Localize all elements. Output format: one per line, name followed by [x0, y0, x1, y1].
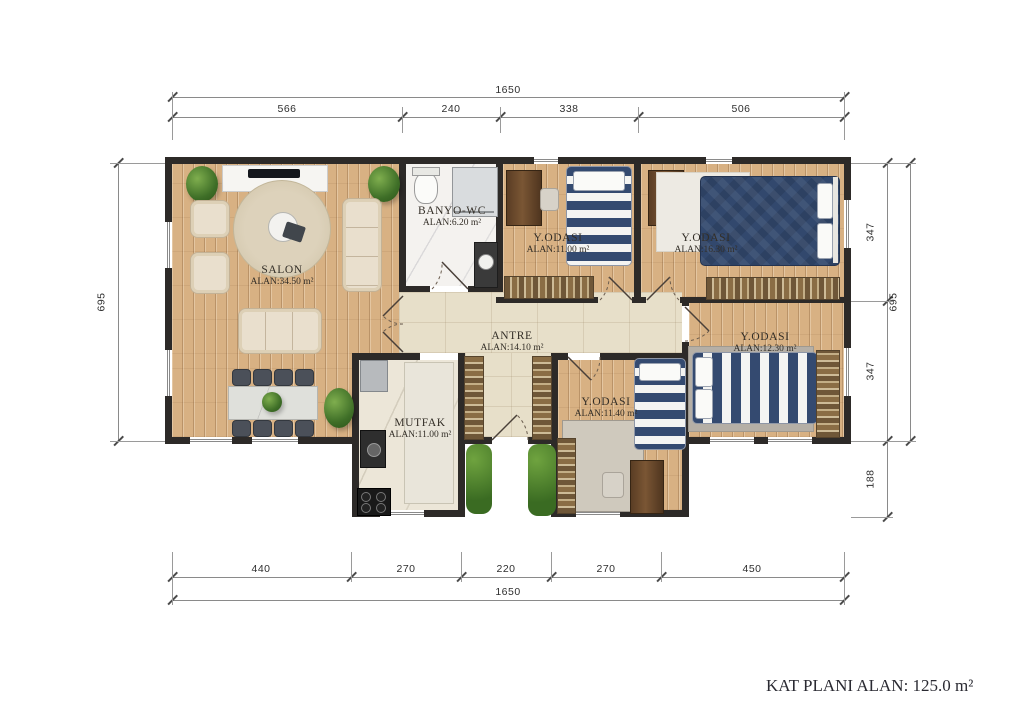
wall: [399, 286, 430, 292]
window: [190, 437, 232, 444]
sofa: [342, 198, 382, 292]
window: [165, 350, 172, 396]
window: [165, 222, 172, 268]
desk: [506, 170, 542, 226]
armchair: [190, 252, 230, 294]
dim-ext-line: [110, 441, 168, 442]
floor-plan-page: 1650 566 240 338 506 695 347 347: [0, 0, 1030, 728]
dim-line: [118, 163, 119, 441]
wall: [399, 157, 406, 292]
pillow: [695, 389, 713, 419]
dining-chair: [295, 369, 314, 386]
wall: [165, 157, 851, 164]
bush: [528, 444, 556, 516]
runner-rug: [504, 276, 594, 299]
bed: [566, 166, 632, 266]
dim-line: [172, 600, 844, 601]
window: [844, 200, 851, 248]
kitchen-sink: [360, 430, 386, 468]
dim-label: 338: [559, 103, 578, 115]
runner-rug: [557, 438, 576, 514]
dim-ext-line: [351, 552, 352, 582]
dim-label: 240: [441, 103, 460, 115]
sink-bowl: [367, 443, 381, 457]
sofa: [238, 308, 322, 354]
dim-ext-line: [110, 163, 168, 164]
dining-chair: [232, 420, 251, 437]
plant: [186, 166, 218, 202]
pillow: [817, 223, 833, 259]
wall: [165, 157, 172, 444]
dim-label-total: 1650: [495, 84, 520, 96]
window: [534, 157, 558, 164]
dim-ext-line: [172, 92, 173, 140]
dim-label: 450: [742, 563, 761, 575]
dim-label: 347: [865, 361, 877, 380]
window: [768, 437, 812, 444]
burner: [361, 503, 371, 513]
dim-label-total: 1650: [495, 586, 520, 598]
dim-ext-line: [851, 517, 893, 518]
dim-ext-line: [851, 301, 893, 302]
window: [706, 157, 732, 164]
toilet: [414, 172, 438, 204]
dim-label: 220: [496, 563, 515, 575]
double-bed: [700, 176, 840, 266]
dining-chair: [274, 420, 293, 437]
wall: [634, 157, 641, 303]
dim-line: [172, 117, 844, 118]
plant: [324, 388, 354, 428]
window: [710, 437, 754, 444]
dining-chair: [253, 420, 272, 437]
dim-ext-line: [638, 107, 639, 133]
dim-label: 566: [277, 103, 296, 115]
runner-rug: [464, 356, 484, 440]
dim-label: 347: [865, 222, 877, 241]
burner: [361, 492, 371, 502]
bush: [466, 444, 492, 514]
burner: [376, 492, 386, 502]
toilet-tank: [412, 167, 440, 176]
plant: [368, 166, 400, 202]
dim-label: 695: [96, 292, 108, 311]
desk-chair: [540, 188, 559, 211]
shower: [452, 167, 498, 217]
dim-label: 188: [865, 469, 877, 488]
wall: [682, 437, 851, 444]
dim-label: 270: [396, 563, 415, 575]
stove: [357, 488, 391, 516]
dim-line: [172, 97, 844, 98]
dim-ext-line: [172, 552, 173, 605]
burner: [376, 503, 386, 513]
window: [844, 348, 851, 396]
dim-ext-line: [851, 163, 916, 164]
dining-chair: [232, 369, 251, 386]
dim-label: 695: [888, 292, 900, 311]
pillow: [817, 183, 833, 219]
wall: [352, 353, 420, 360]
armchair: [190, 200, 230, 238]
dim-label: 440: [251, 563, 270, 575]
tv: [248, 169, 300, 178]
dim-ext-line: [851, 441, 916, 442]
dim-label: 270: [596, 563, 615, 575]
dining-chair: [253, 369, 272, 386]
dim-ext-line: [844, 92, 845, 140]
plan-title: KAT PLANI ALAN: 125.0 m²: [766, 676, 973, 696]
runner-rug: [706, 277, 840, 300]
bed: [634, 358, 686, 450]
bath-sink: [478, 254, 494, 270]
pillow: [573, 171, 625, 191]
fridge: [360, 360, 388, 392]
dim-ext-line: [461, 552, 462, 582]
window: [252, 437, 298, 444]
pillow: [695, 357, 713, 387]
bed: [692, 352, 818, 424]
desk: [630, 460, 664, 514]
dim-ext-line: [844, 552, 845, 605]
dining-chair: [295, 420, 314, 437]
dim-ext-line: [551, 552, 552, 582]
wall: [682, 303, 689, 306]
pillow: [639, 363, 681, 381]
headboard: [833, 177, 838, 263]
desk-chair: [602, 472, 624, 498]
table-plant: [262, 392, 282, 412]
dim-ext-line: [500, 107, 501, 133]
dim-label: 506: [731, 103, 750, 115]
kitchen-counter: [404, 362, 454, 504]
dim-line: [910, 163, 911, 441]
runner-rug: [532, 356, 552, 440]
dim-ext-line: [661, 552, 662, 582]
shower-glass: [454, 211, 494, 213]
dim-line: [172, 577, 844, 578]
runner-rug: [816, 350, 840, 438]
wall: [551, 353, 568, 360]
dining-chair: [274, 369, 293, 386]
dim-ext-line: [402, 107, 403, 133]
dim-line: [887, 163, 888, 517]
